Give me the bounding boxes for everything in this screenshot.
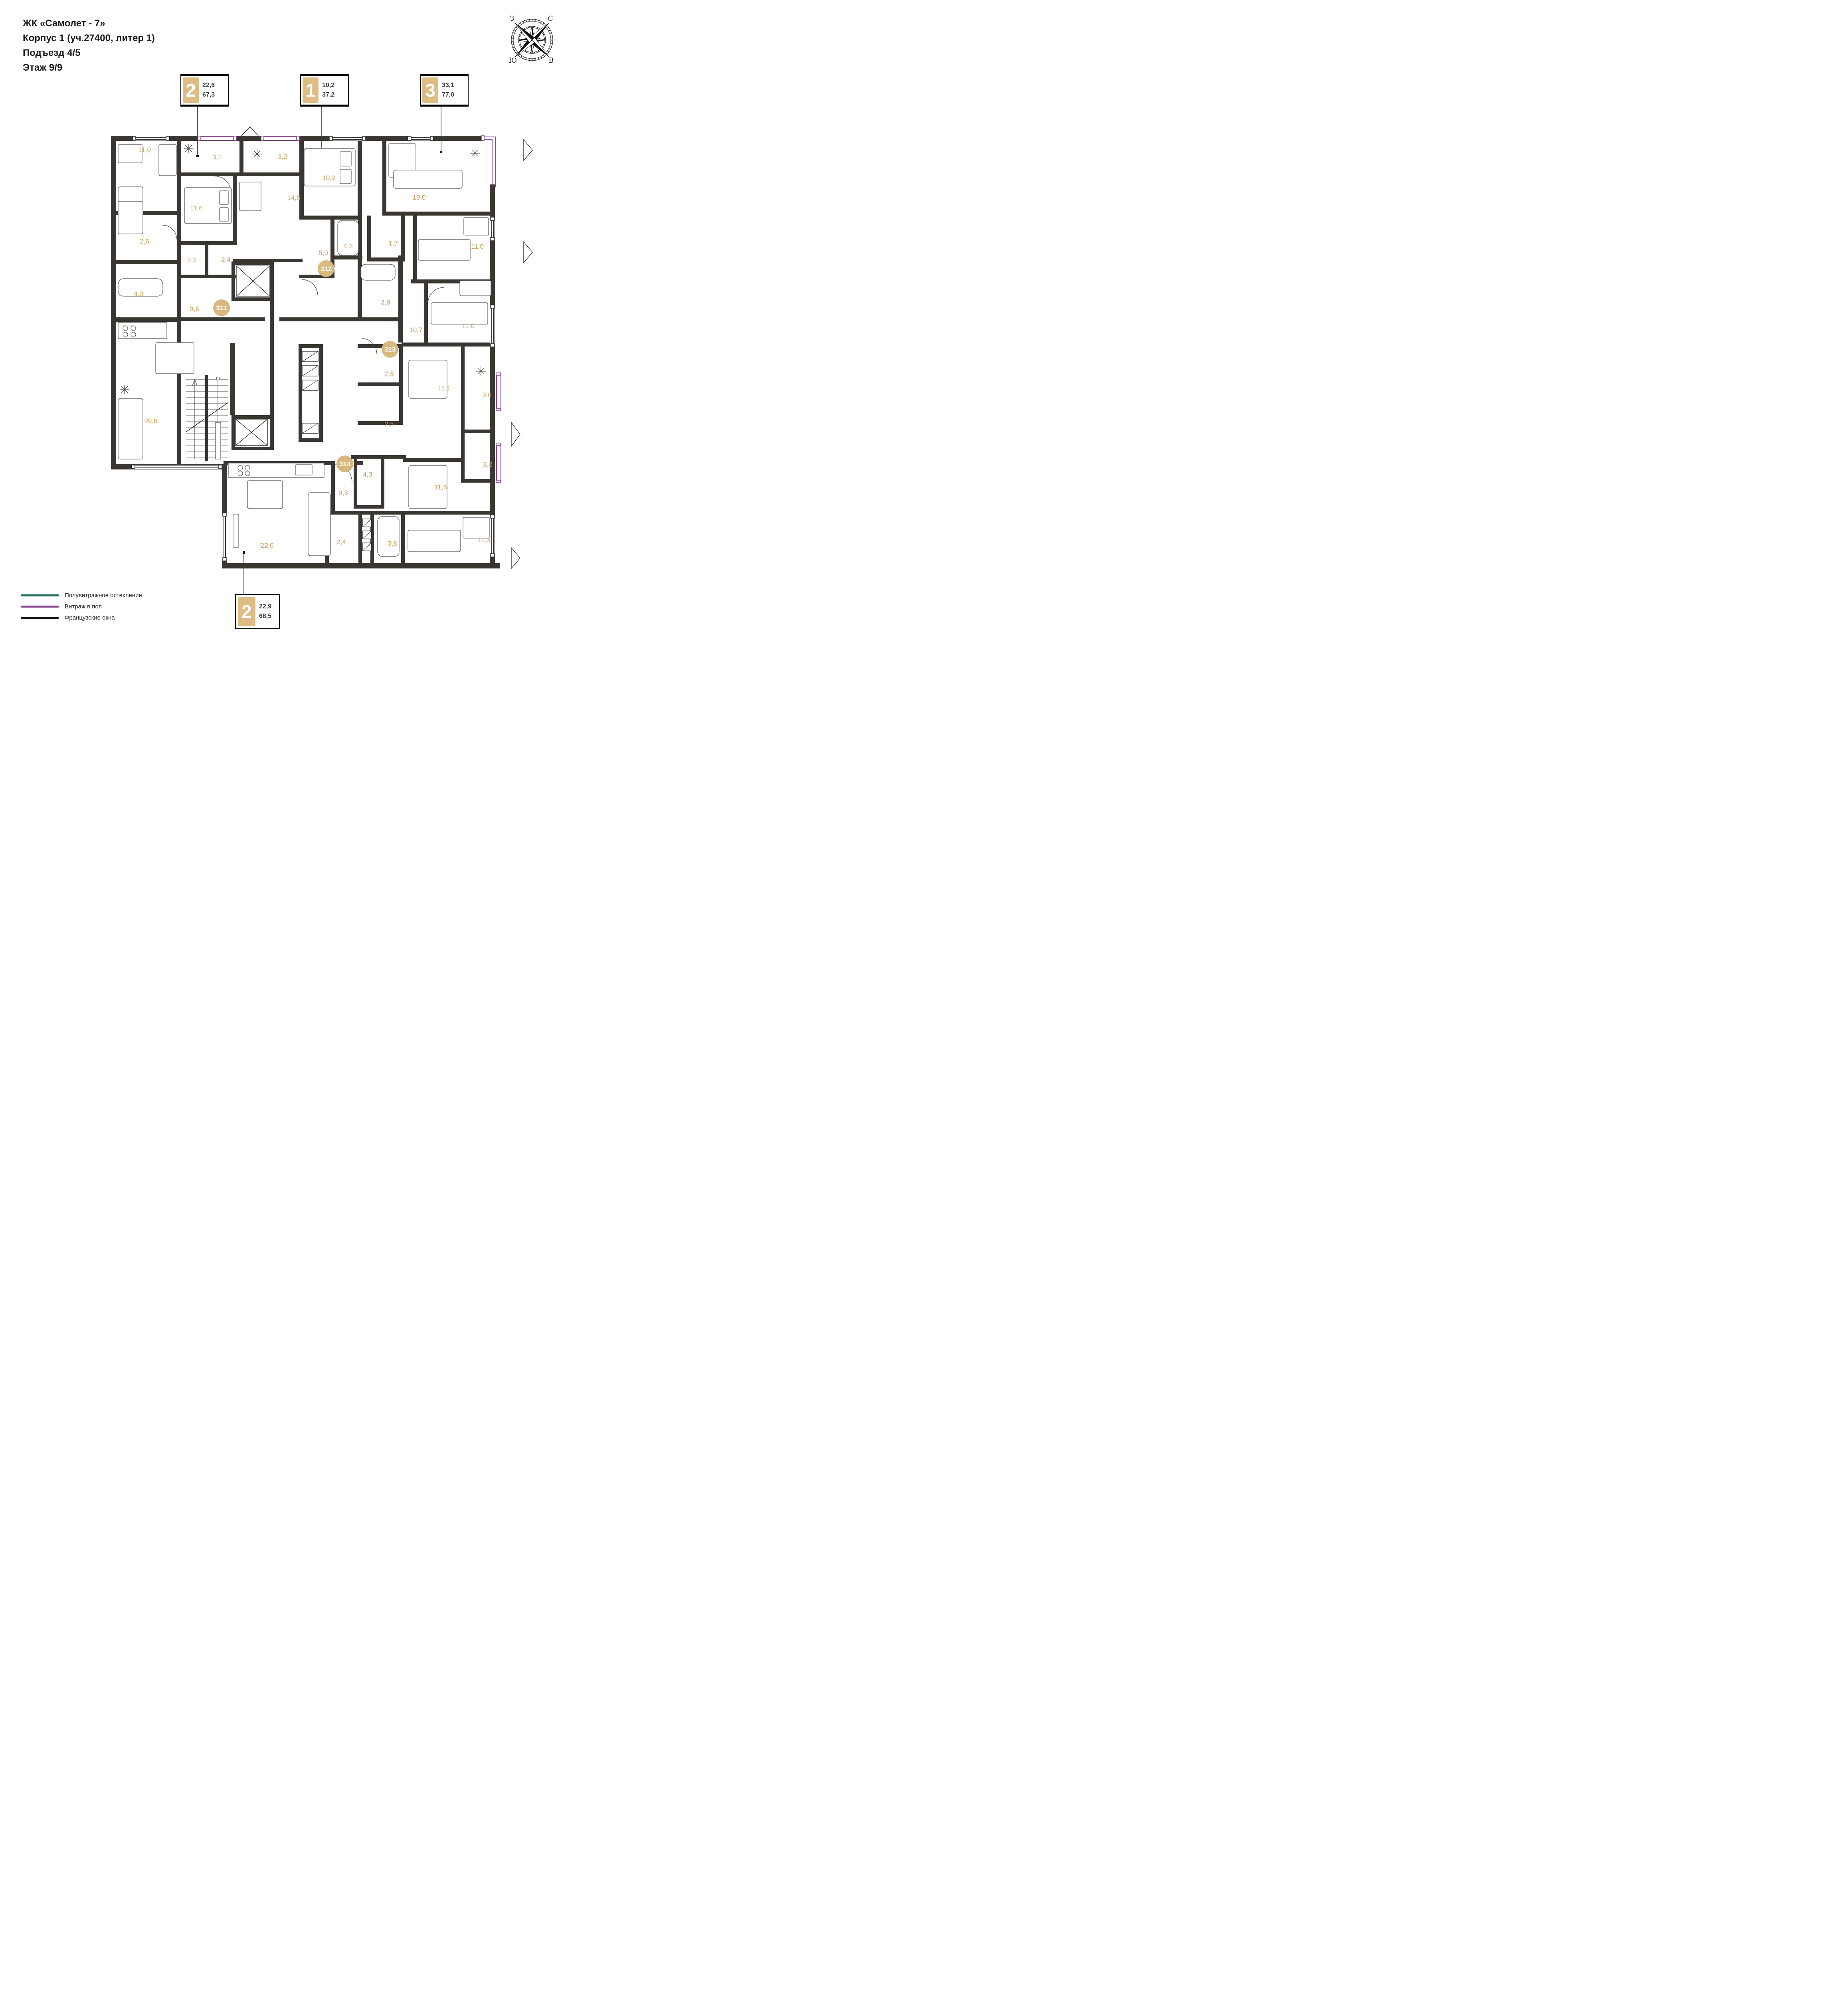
staircase <box>186 375 228 461</box>
room-area-label: 2,6 <box>140 238 149 245</box>
furniture-layer <box>118 144 491 556</box>
room-area-label: 3,6 <box>482 391 492 399</box>
floor-plan-svg: 11,03,23,210,214,519,011,62,62,32,45,04,… <box>0 0 578 644</box>
room-area-label: 11,0 <box>462 322 475 330</box>
room-area-label: 2,4 <box>336 538 346 546</box>
apartment-number-label: 311 <box>216 304 227 312</box>
room-area-label: 11,3 <box>478 536 491 544</box>
apartment-number-label: 313 <box>384 346 396 353</box>
room-area-label: 9,3 <box>338 489 348 497</box>
floor-plan-page: ЖК «Самолет - 7» Корпус 1 (уч.27400, лит… <box>0 0 578 644</box>
room-area-label: 3,2 <box>278 153 287 160</box>
room-area-label: 3,9 <box>381 299 390 306</box>
room-area-label: 22,6 <box>260 542 273 549</box>
room-area-label: 11,0 <box>471 243 484 250</box>
room-area-label: 2,4 <box>221 256 231 263</box>
room-area-label: 10,2 <box>322 174 335 182</box>
room-area-label: 20,6 <box>144 417 157 425</box>
room-area-label: 3,2 <box>483 461 493 468</box>
room-area-label: 14,5 <box>287 194 300 202</box>
room-area-label: 11,6 <box>434 483 447 491</box>
apartment-number-label: 312 <box>321 265 332 273</box>
room-area-label: 4,0 <box>134 290 143 298</box>
apartment-number-label: 314 <box>339 460 351 468</box>
room-area-label: 4,3 <box>343 242 353 250</box>
room-area-label: 10,7 <box>409 326 422 334</box>
room-area-label: 2,5 <box>384 420 394 428</box>
room-area-label: 2,5 <box>384 370 394 378</box>
room-area-label: 11,1 <box>438 384 451 392</box>
room-area-label: 9,6 <box>190 305 199 313</box>
room-area-label: 2,3 <box>187 256 197 264</box>
room-area-label: 11,6 <box>190 204 203 212</box>
room-area-label: 11,0 <box>138 146 151 154</box>
room-area-label: 1,7 <box>388 240 398 247</box>
room-area-label: 4,3 <box>363 471 372 478</box>
room-area-label: 5,0 <box>319 249 328 257</box>
room-area-label: 3,8 <box>388 540 397 547</box>
room-area-label: 19,0 <box>412 194 425 201</box>
room-area-label: 3,2 <box>212 153 222 161</box>
